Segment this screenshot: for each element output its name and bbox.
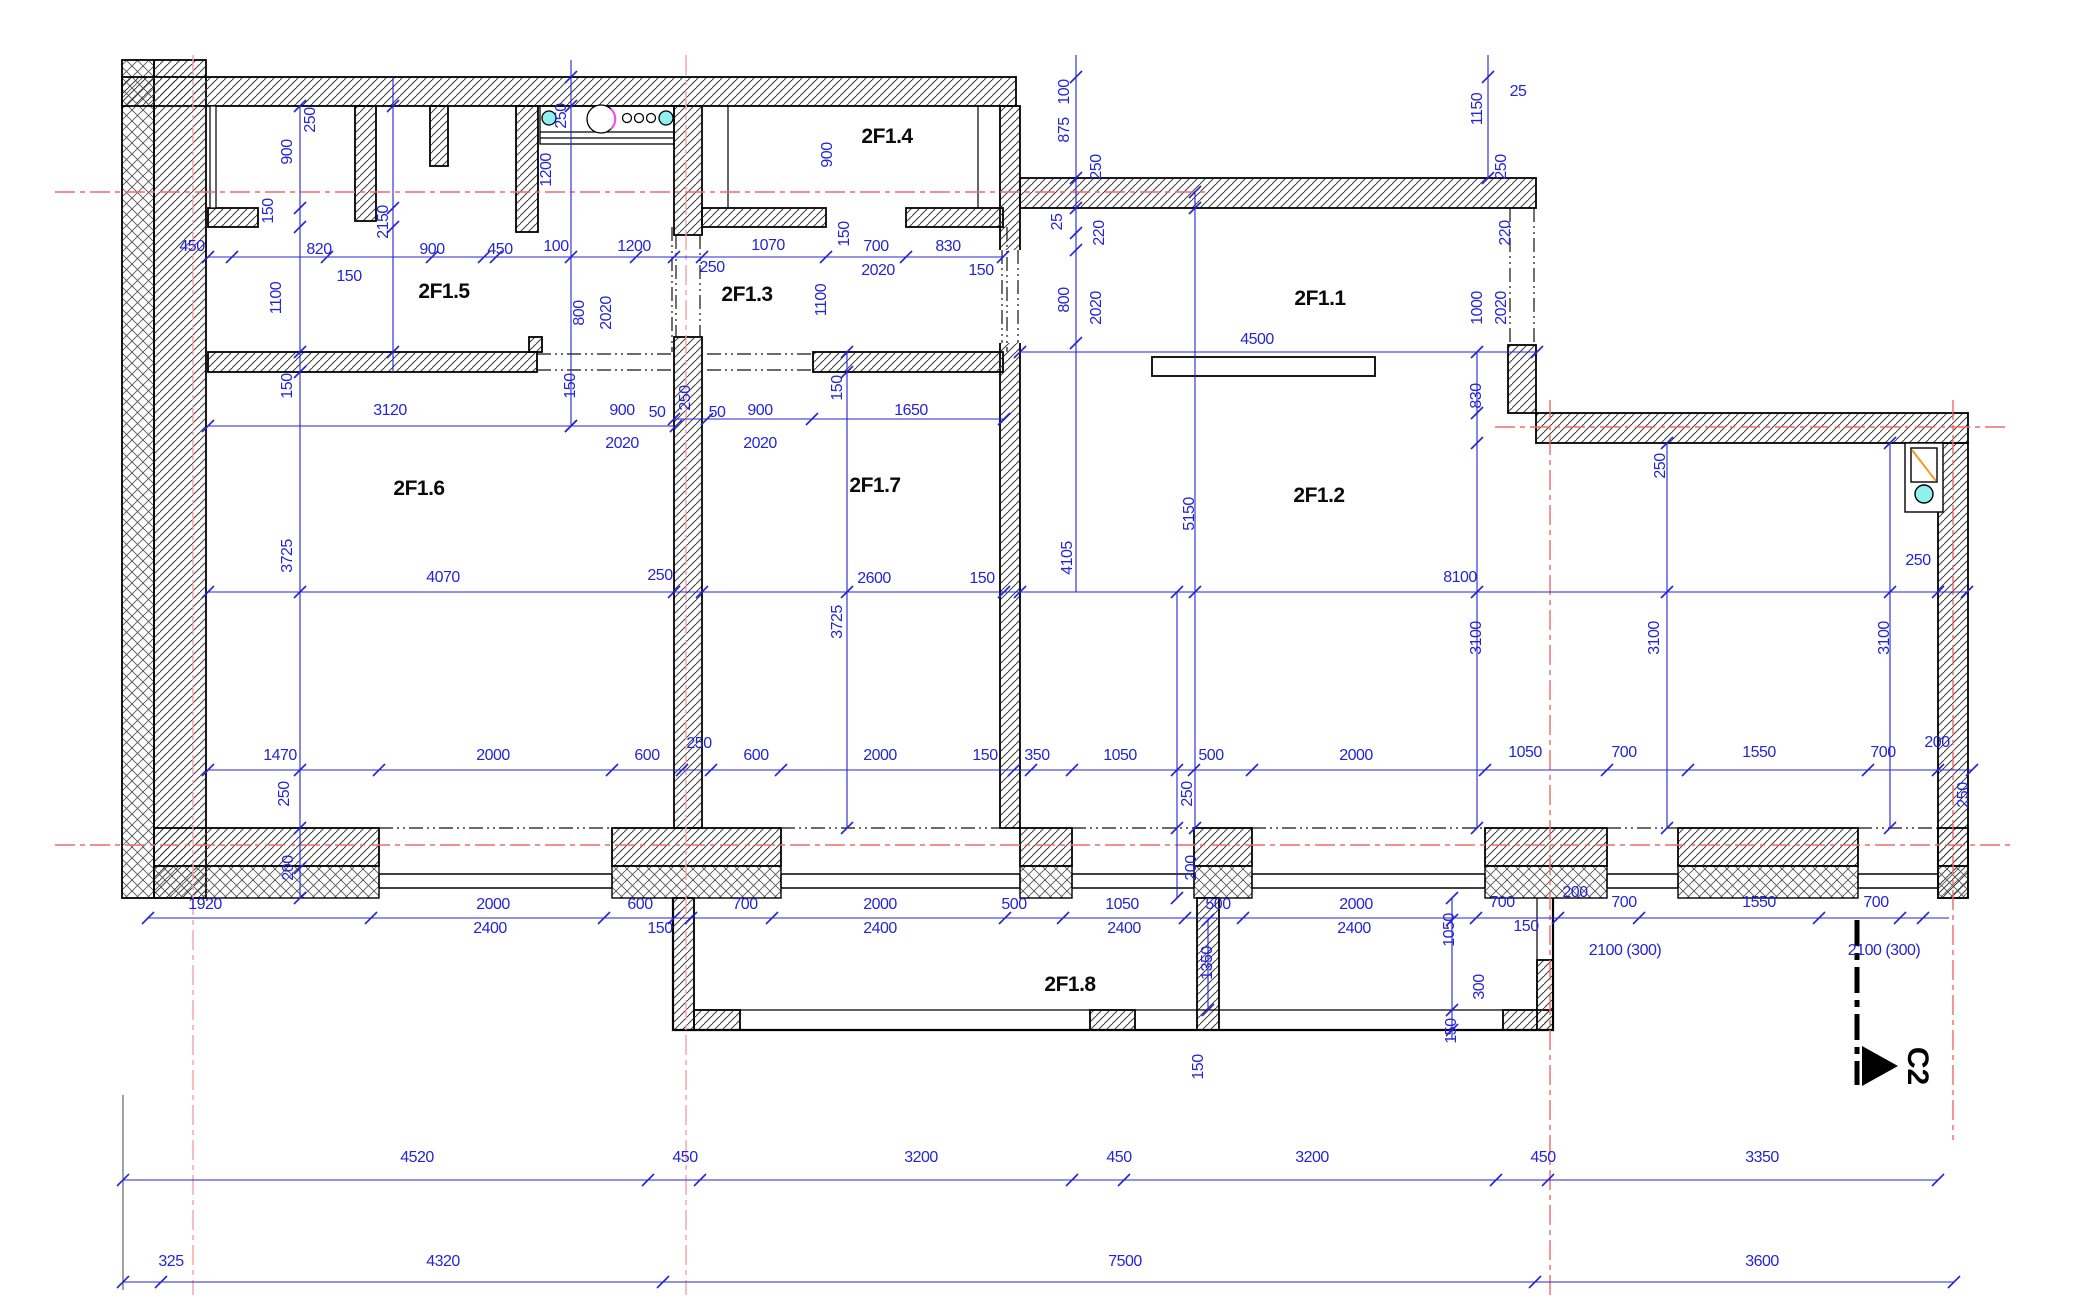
wall-top-2f11 (1020, 178, 1536, 208)
burner-icon (635, 114, 644, 123)
jamb-projection-line (672, 227, 1007, 352)
window (781, 874, 1020, 888)
boiler-pipe-icon (1915, 485, 1933, 503)
sink-bowl-icon (587, 105, 615, 133)
wall-bottom-insulation (154, 866, 379, 898)
wall-step-right (1508, 345, 1536, 413)
window (379, 874, 612, 888)
section-marker-c2 (1857, 920, 1898, 1086)
wall-top-right-block (1536, 413, 1968, 443)
wall-mid-left (208, 352, 537, 372)
door-opening-line (676, 235, 700, 337)
window (1607, 874, 1678, 888)
dimension-ticks (117, 71, 1978, 1288)
beam-lintel (1152, 357, 1375, 376)
wall-bottom-insulation (1194, 866, 1252, 898)
wall-bottom-insulation (1485, 866, 1607, 898)
wall-left-insulation (122, 60, 154, 898)
door-opening-line (537, 354, 674, 370)
window (1252, 874, 1485, 888)
door-opening-line (707, 354, 813, 370)
wall-pier-kitchen (516, 106, 538, 232)
window-opening-line (1510, 208, 1534, 345)
wall-bottom-pier (1678, 828, 1858, 866)
floor-plan-canvas: C2 4509002501508201502150900450100120012… (0, 0, 2094, 1298)
boiler-fixture (1905, 443, 1943, 512)
window (1072, 874, 1194, 888)
opening-lines-layer (379, 208, 1938, 828)
sink-icon (659, 111, 673, 125)
section-arrow-icon (1862, 1046, 1898, 1086)
wall-bottom-pier (612, 828, 781, 866)
wall-mid-right (813, 352, 1003, 372)
floor-plan-drawing (0, 0, 2094, 1298)
wall-a2-lower (674, 337, 702, 828)
window (1858, 874, 1938, 888)
wall-left (154, 60, 206, 898)
wall-bottom-pier (154, 828, 379, 866)
axes-layer (55, 55, 2010, 1295)
door-opening-line (826, 208, 906, 227)
wall-bottom-pier (1485, 828, 1607, 866)
walls-layer (122, 60, 1968, 1030)
balcony-edge-pier (694, 1010, 740, 1030)
wall-mid-pier (529, 337, 542, 352)
wall-bottom-insulation (1020, 866, 1072, 898)
burner-icon (647, 114, 656, 123)
wall-pier-2f15 (355, 106, 376, 221)
wall-stub-2f14-right (906, 208, 1003, 227)
dimension-lines-layer (123, 55, 1972, 1282)
balcony-edge-pier (1090, 1010, 1135, 1030)
kitchen-counter (540, 105, 674, 144)
wall-bottom-insulation (1678, 866, 1858, 898)
wall-ledge-2f15 (208, 208, 258, 227)
wall-a2-upper (674, 106, 702, 235)
wall-pier-small (430, 106, 448, 166)
wall-top-left-block (122, 77, 1016, 106)
sink-icon (542, 111, 556, 125)
wall-bottom-pier (1020, 828, 1072, 866)
wall-stub-2f14-left (702, 208, 826, 227)
burner-icon (623, 114, 632, 123)
wall-bottom-insulation (612, 866, 781, 898)
wall-bottom-pier (1194, 828, 1252, 866)
